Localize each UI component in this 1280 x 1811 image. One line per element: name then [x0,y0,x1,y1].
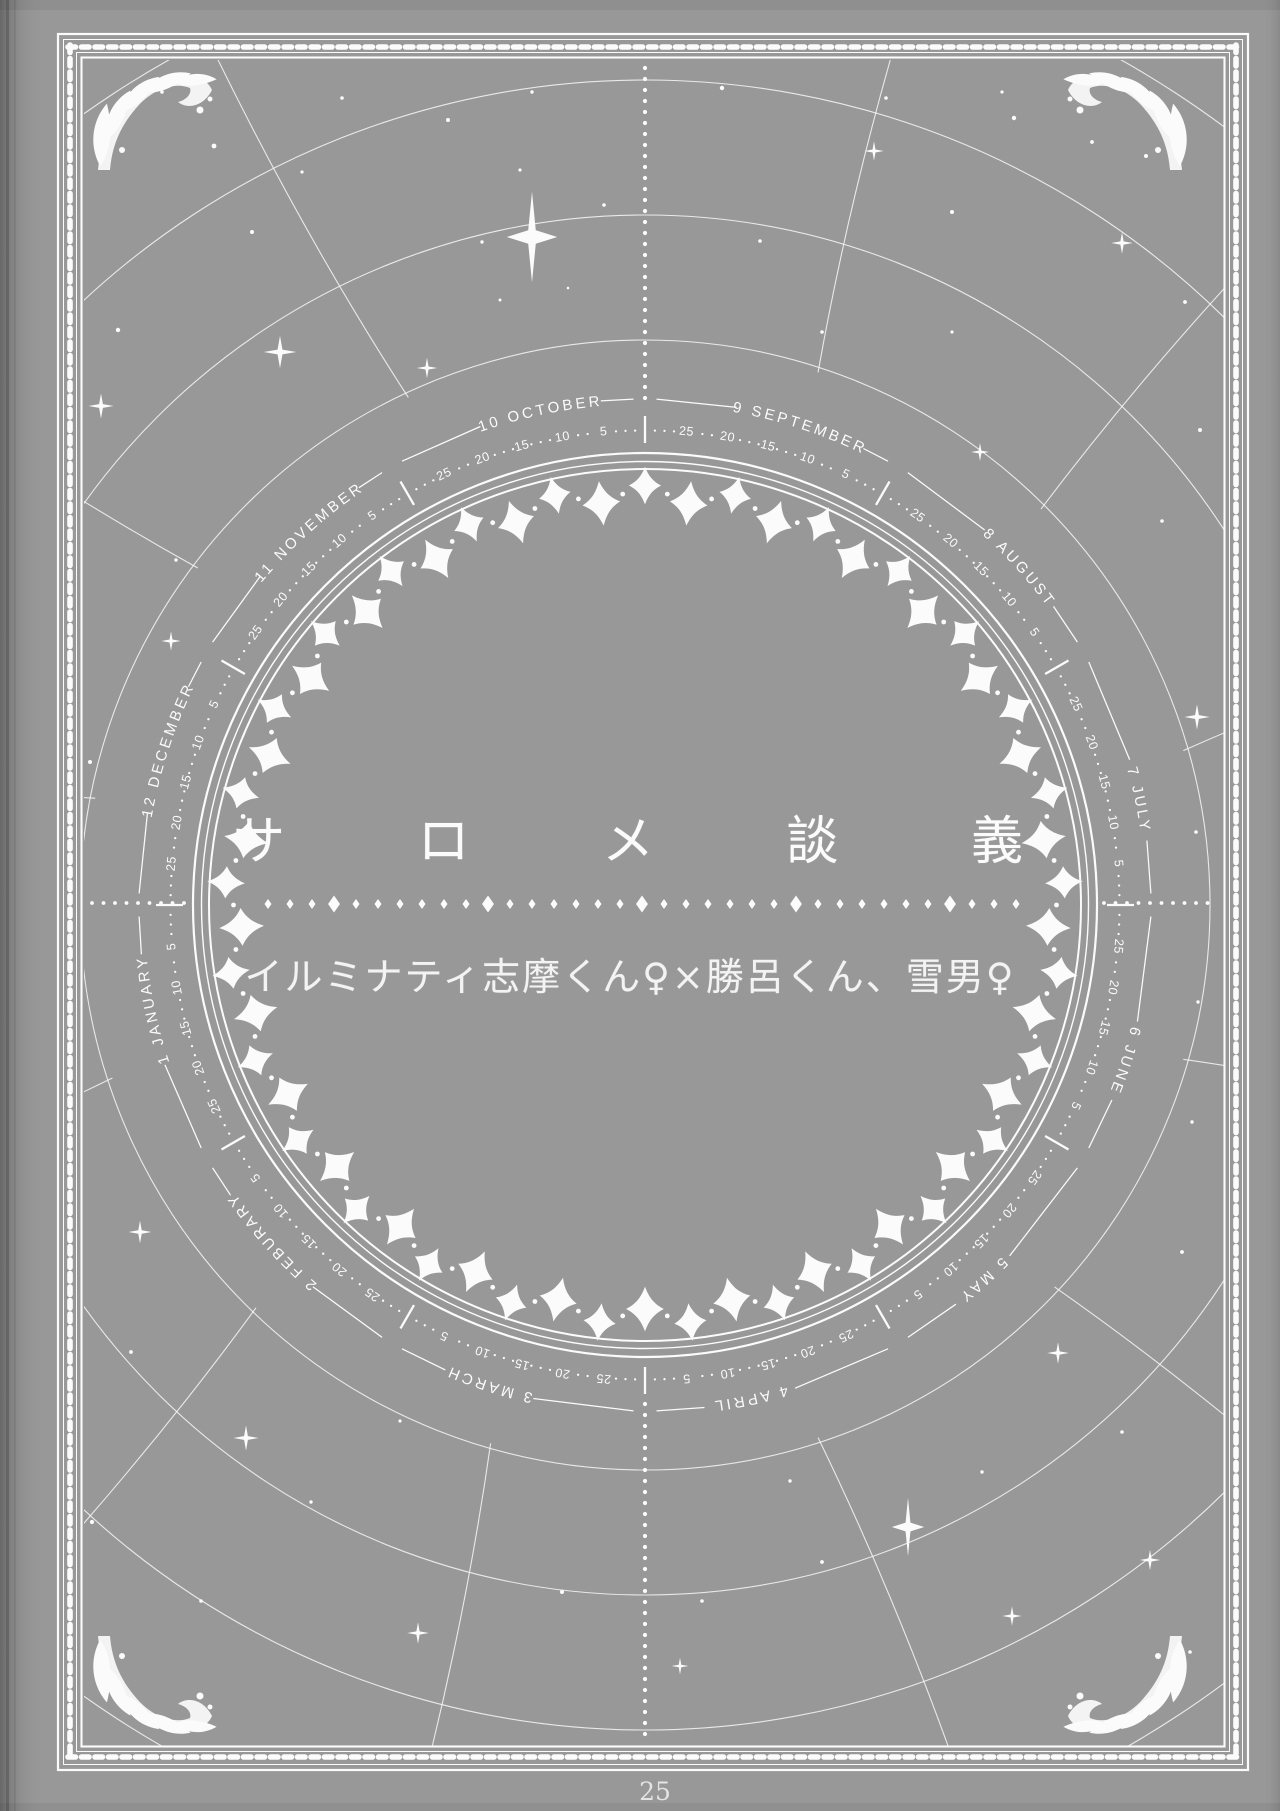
day-tick-number: 10 [554,429,571,445]
star-dot [1196,1000,1199,1003]
star-dot [88,760,92,764]
title-character: サ [233,814,285,871]
day-tick-number: 25 [678,424,694,439]
title-character: ロ [417,814,469,871]
star-dot [116,328,120,332]
star-dot [1198,428,1202,432]
day-tick-number: 5 [1111,859,1126,868]
star-dot [398,1419,401,1422]
star-dot [340,96,344,100]
star-dot [250,230,254,234]
day-tick-number: 5 [682,1371,691,1386]
subtitle: イルミナティ志摩くん♀×勝呂くん、雪男♀ [130,946,1130,1001]
star-dot [446,118,450,122]
star-dot [820,330,824,334]
star-dot [309,1500,312,1503]
title-character: メ [602,814,654,871]
star-dot [174,558,177,561]
day-tick-number: 5 [599,424,608,439]
star-dot [758,239,762,243]
star-dot [820,1560,824,1564]
star-dot [980,1470,983,1473]
star-dot [1190,1120,1193,1123]
star-dot [788,1479,791,1482]
star-dot [950,330,953,333]
star-dot [1194,830,1198,834]
star-dot [1183,300,1187,304]
star-dot [530,90,533,93]
star-dot [884,96,888,100]
star-dot [1120,1430,1124,1434]
title-character: 談 [786,814,838,871]
day-tick-number: 10 [1105,814,1121,831]
star-dot [1090,140,1094,144]
day-tick-number: 20 [169,814,185,831]
title-character: 義 [971,814,1023,871]
star-dot [720,86,724,90]
day-tick-number: 20 [554,1365,571,1381]
star-dot [1160,519,1164,523]
star-dot [212,144,217,149]
star-dot [129,1350,133,1354]
star-dot [560,1590,564,1594]
page-number: 25 [605,1777,705,1806]
star-dot [1000,90,1003,93]
doujinshi-title-page: 5101520251 JANUARY5101520252 FEBURARY510… [0,0,1280,1811]
day-tick-number: 20 [719,429,736,445]
star-dot [567,287,570,290]
star-dot [950,210,954,214]
celestial-chart: 5101520251 JANUARY5101520252 FEBURARY510… [0,0,1280,1811]
day-tick-number: 10 [719,1365,736,1381]
star-dot [480,240,483,243]
star-dot [602,203,606,207]
star-dot [1144,154,1148,158]
star-dot [1188,1650,1192,1654]
star-dot [90,1520,94,1524]
star-dot [518,168,521,171]
day-tick-number: 25 [164,855,179,871]
page-title: サ ロ メ 談 義 [233,814,1023,871]
star-dot [700,1599,704,1603]
star-dot [1180,1250,1184,1254]
star-dot [1012,116,1016,120]
day-tick-number: 25 [595,1371,611,1386]
star-dot [300,170,303,173]
star-dot [199,1599,203,1603]
star-dot [499,299,502,302]
